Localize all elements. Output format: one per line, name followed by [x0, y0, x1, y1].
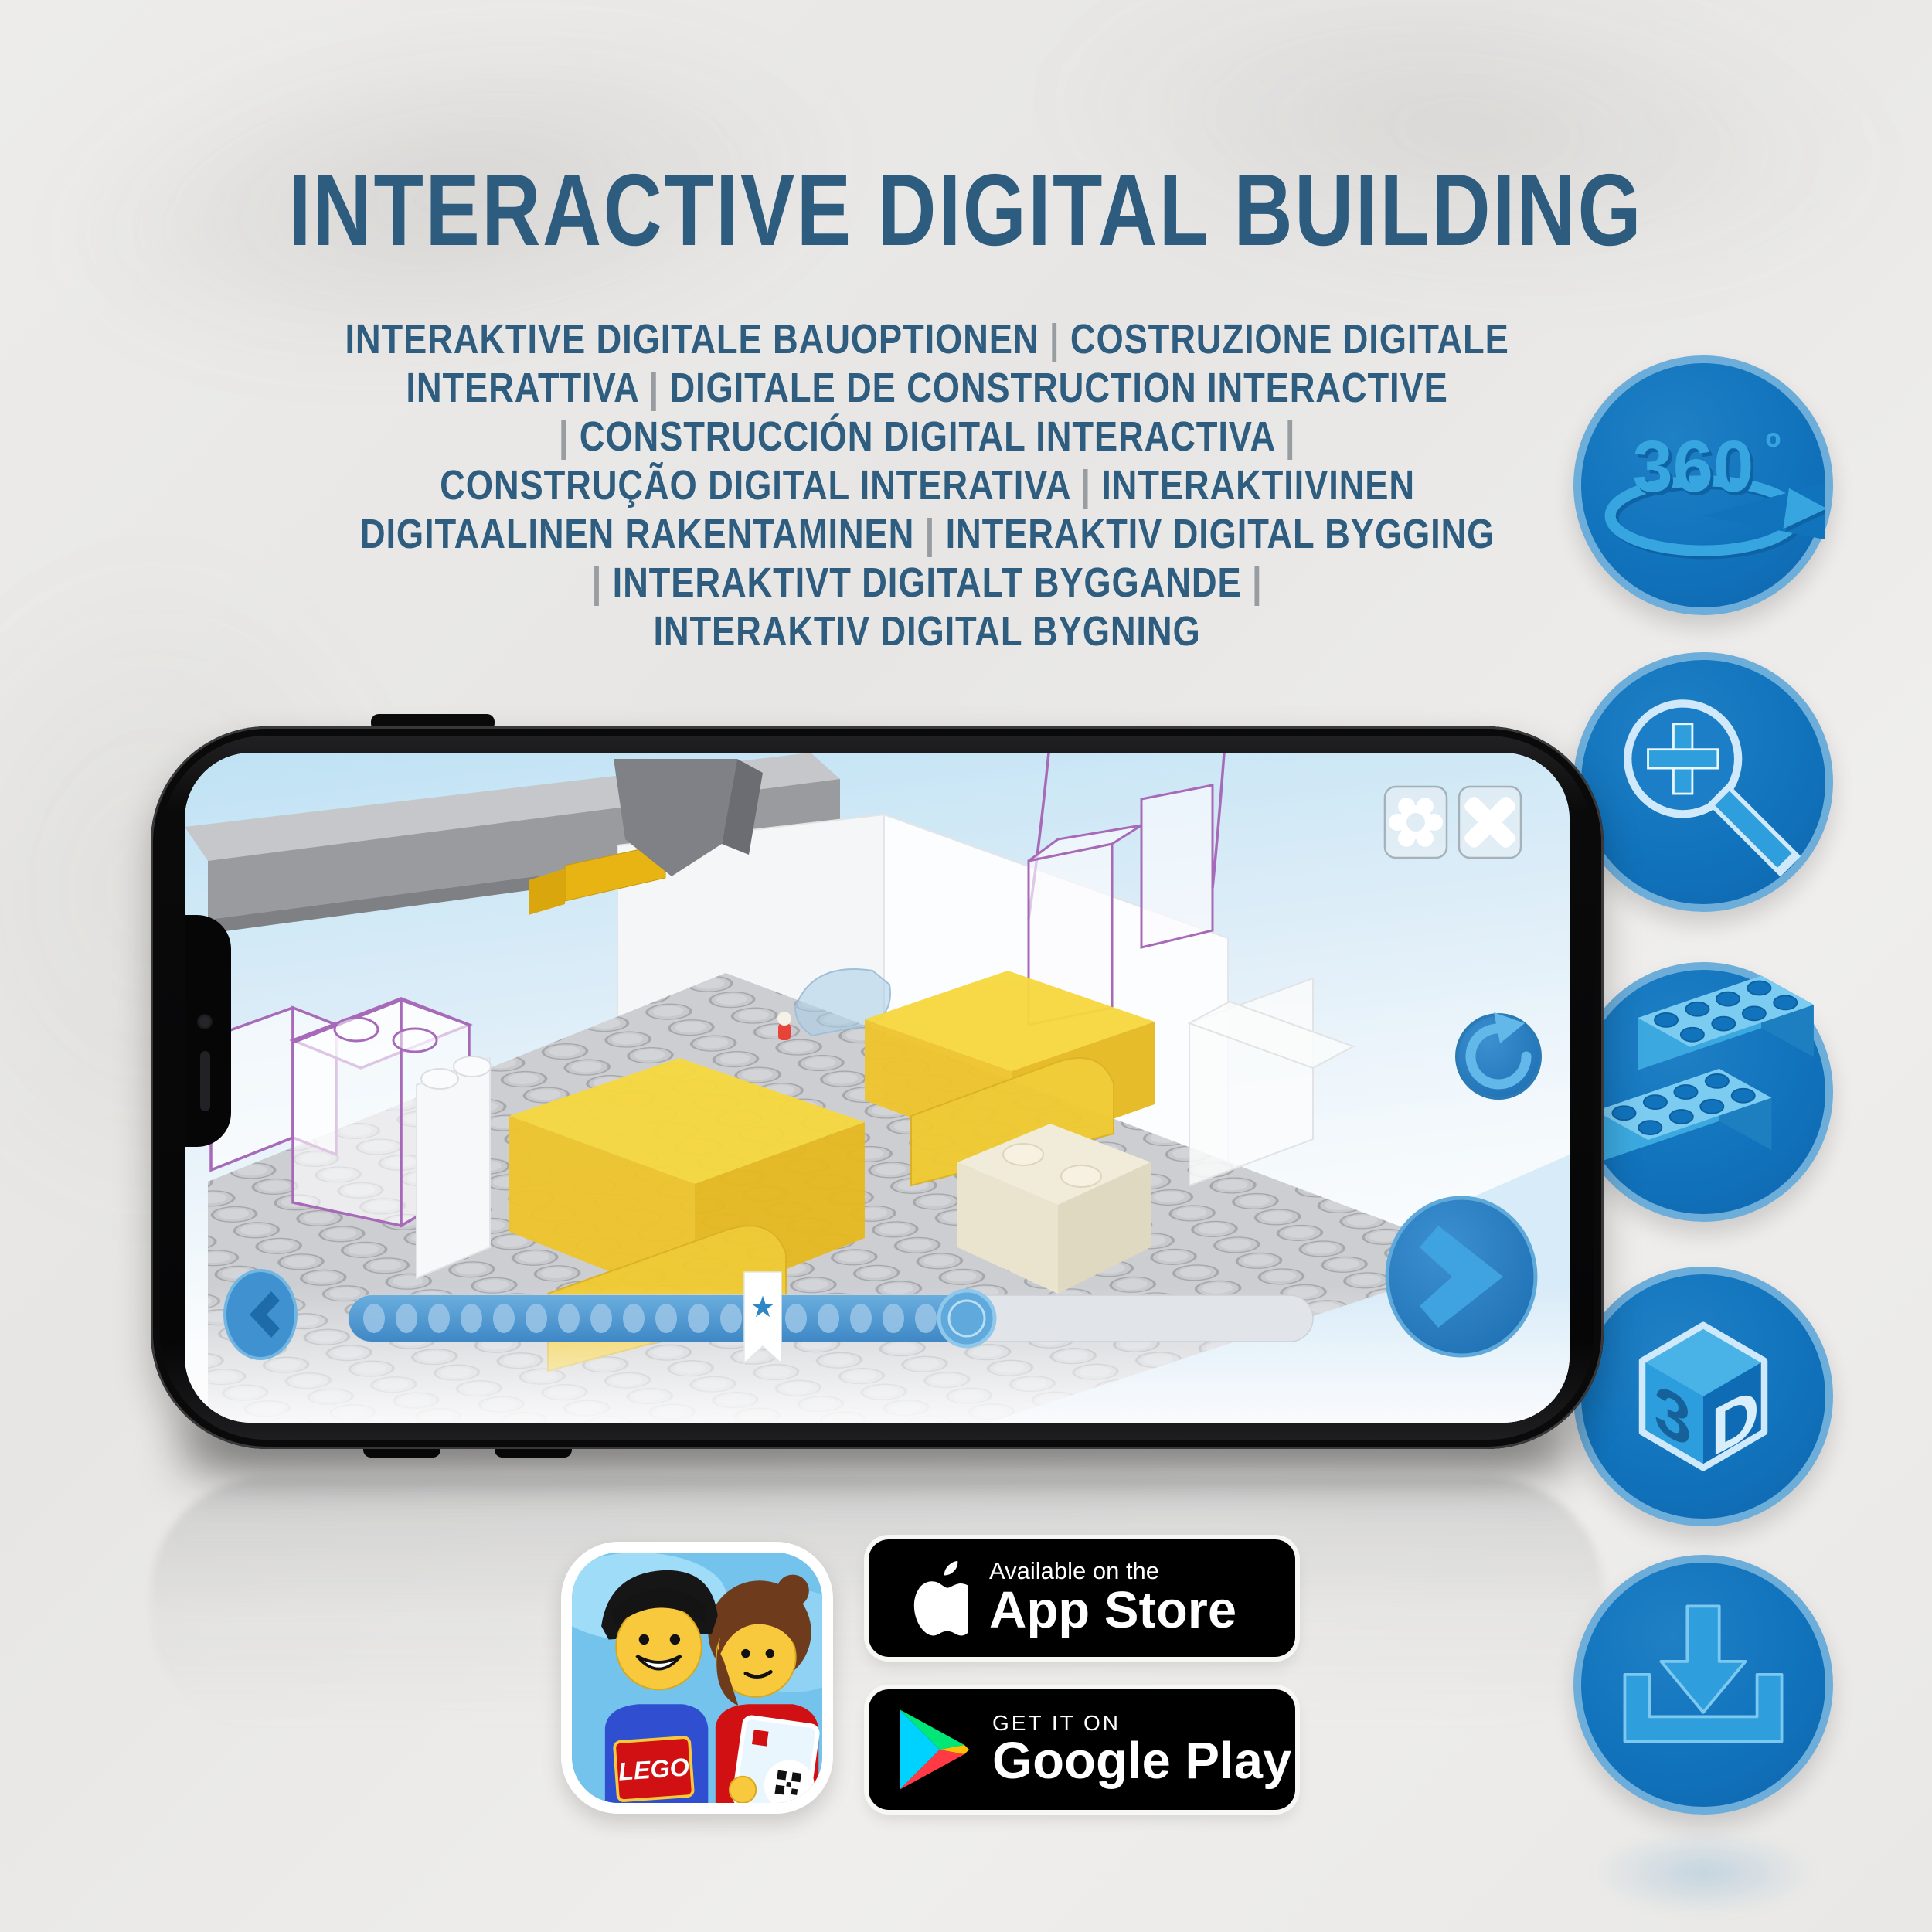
star-icon: ★ [750, 1291, 776, 1324]
progress-handle[interactable] [939, 1291, 995, 1346]
brick-feature-badge [1573, 962, 1833, 1222]
subtitle-line: | INTERAKTIVT DIGITALT BYGGANDE | [592, 559, 1263, 607]
360-label: 360 [1632, 426, 1753, 507]
earpiece-speaker [200, 1051, 210, 1111]
rotate-button[interactable] [1457, 1012, 1540, 1098]
google-play-tagline: GET IT ON [992, 1712, 1291, 1734]
page-title: INTERACTIVE DIGITAL BUILDING [0, 151, 1932, 268]
building-scene: ★ [185, 753, 1570, 1423]
app-store-badge[interactable]: Available on the App Store [869, 1539, 1295, 1657]
phone-notch [185, 915, 231, 1147]
download-feature-badge [1573, 1555, 1833, 1815]
3d-cube-icon: 3 D [1581, 1274, 1825, 1519]
subtitle-line: CONSTRUÇÃO DIGITAL INTERATIVA | INTERAKT… [440, 461, 1415, 509]
zoom-in-icon [1581, 660, 1825, 904]
download-icon [1581, 1563, 1825, 1807]
google-play-badge[interactable]: GET IT ON Google Play [869, 1689, 1295, 1810]
phone-screen: ★ [185, 753, 1570, 1423]
brick-stack-icon [1581, 970, 1825, 1214]
app-store-name: App Store [989, 1583, 1236, 1638]
lego-app-icon[interactable]: LEGO [561, 1542, 833, 1814]
360-rotation-badge: 360 360 º [1573, 355, 1833, 615]
app-store-tagline: Available on the [989, 1559, 1236, 1583]
360-rotation-icon: 360 360 º [1581, 363, 1825, 607]
3d-feature-badge: 3 D [1573, 1267, 1833, 1526]
subtitle-line: INTERAKTIVE DIGITALE BAUOPTIONEN | COSTR… [345, 315, 1509, 363]
phone-device: ★ [151, 726, 1604, 1449]
google-play-name: Google Play [992, 1734, 1291, 1788]
subtitle-line: DIGITAALINEN RAKENTAMINEN | INTERAKTIV D… [360, 510, 1495, 558]
icon-reflection [1592, 1830, 1816, 1915]
subtitle-line: INTERAKTIV DIGITAL BYGNING [654, 607, 1201, 655]
subtitle-translations: INTERAKTIVE DIGITALE BAUOPTIONEN | COSTR… [116, 315, 1739, 656]
subtitle-line: INTERATTIVA | DIGITALE DE CONSTRUCTION I… [406, 364, 1448, 412]
lego-app-artwork: LEGO [572, 1553, 822, 1803]
next-step-button[interactable] [1387, 1198, 1536, 1355]
degree-symbol: º [1765, 424, 1781, 471]
subtitle-line: | CONSTRUCCIÓN DIGITAL INTERACTIVA | [559, 413, 1296, 461]
previous-step-button[interactable] [225, 1270, 296, 1359]
apple-icon [896, 1556, 968, 1640]
zoom-feature-badge [1573, 652, 1833, 912]
front-camera [197, 1014, 213, 1029]
settings-button[interactable] [1385, 787, 1447, 858]
close-button[interactable] [1459, 787, 1521, 858]
google-play-icon [896, 1707, 971, 1792]
lego-logo-text: LEGO [617, 1753, 690, 1785]
